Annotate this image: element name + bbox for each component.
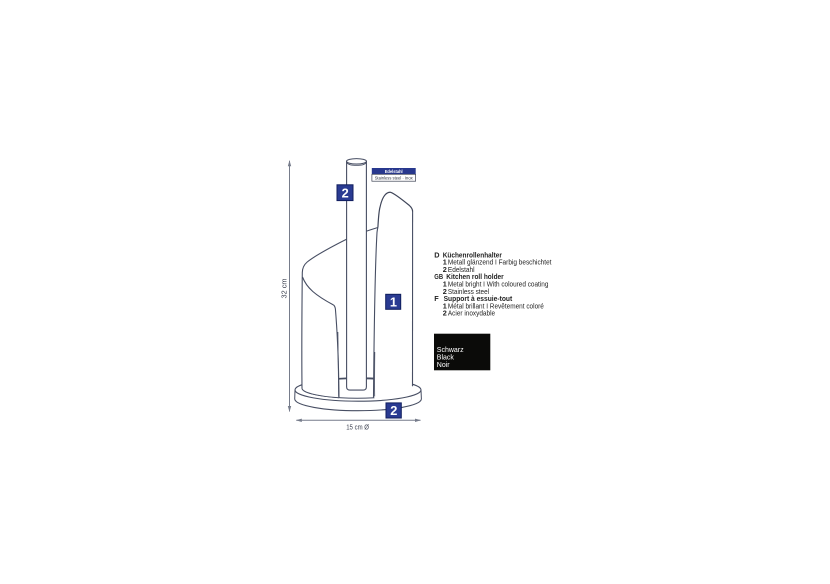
svg-text:32 cm: 32 cm xyxy=(279,279,288,299)
svg-text:Stainless steel · Inox: Stainless steel · Inox xyxy=(375,176,414,181)
svg-text:1: 1 xyxy=(390,295,397,310)
svg-text:D: D xyxy=(434,250,439,259)
svg-text:F: F xyxy=(434,294,439,303)
svg-text:Edelstahl: Edelstahl xyxy=(385,169,403,174)
svg-text:Acier inoxydable: Acier inoxydable xyxy=(448,309,495,318)
svg-text:Schwarz: Schwarz xyxy=(437,347,464,354)
svg-text:2: 2 xyxy=(342,186,349,201)
svg-text:2: 2 xyxy=(390,403,397,418)
svg-text:2: 2 xyxy=(443,309,447,318)
svg-text:Noir: Noir xyxy=(437,362,451,369)
svg-text:15 cm Ø: 15 cm Ø xyxy=(346,423,369,432)
svg-text:Black: Black xyxy=(437,355,455,362)
